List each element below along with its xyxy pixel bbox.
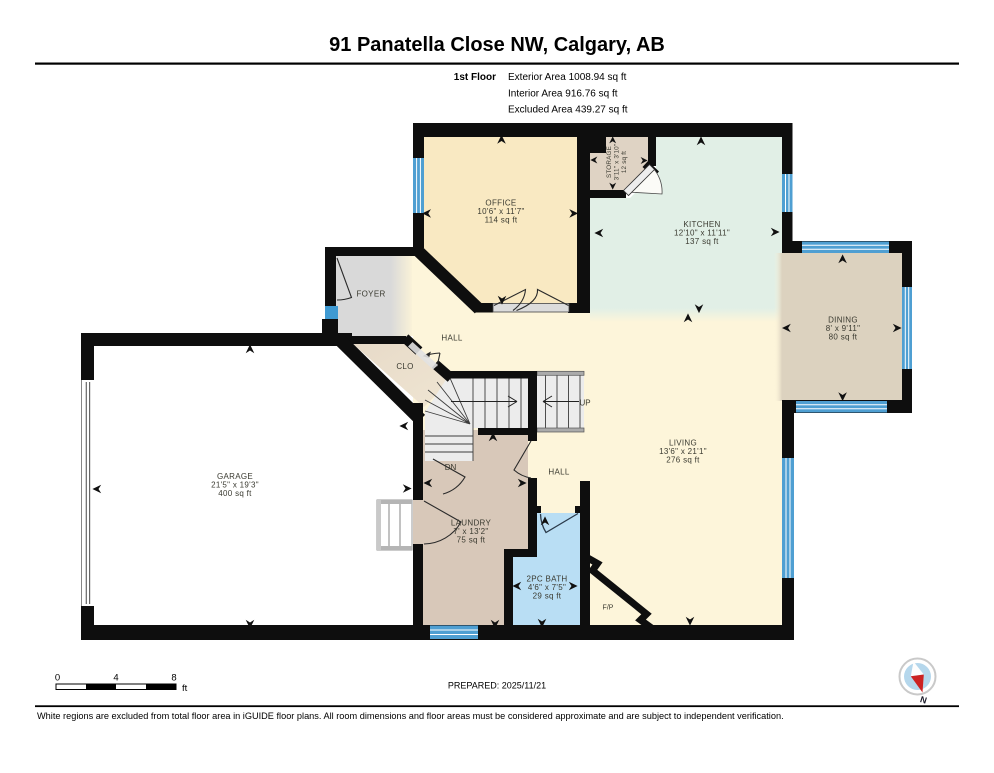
svg-text:4: 4 [113, 673, 118, 684]
svg-text:80 sq ft: 80 sq ft [829, 333, 858, 342]
svg-text:137 sq ft: 137 sq ft [685, 237, 719, 246]
svg-text:91 Panatella Close NW, Calgary: 91 Panatella Close NW, Calgary, AB [329, 34, 665, 56]
svg-text:3'11" x 3'10": 3'11" x 3'10" [614, 144, 621, 181]
svg-text:0: 0 [55, 673, 60, 684]
svg-text:STORAGE: STORAGE [606, 146, 613, 178]
svg-text:Interior Area 916.76 sq ft: Interior Area 916.76 sq ft [508, 88, 618, 99]
svg-text:1st Floor: 1st Floor [454, 72, 496, 83]
svg-text:114 sq ft: 114 sq ft [485, 216, 518, 225]
svg-text:400 sq ft: 400 sq ft [218, 489, 252, 498]
svg-text:F/P: F/P [603, 605, 614, 612]
svg-text:Excluded Area 439.27 sq ft: Excluded Area 439.27 sq ft [508, 105, 628, 116]
svg-text:UP: UP [579, 399, 590, 408]
svg-text:ft: ft [182, 683, 188, 694]
svg-text:N: N [919, 694, 928, 705]
svg-text:8: 8 [171, 673, 176, 684]
svg-text:75 sq ft: 75 sq ft [457, 536, 486, 545]
svg-text:FOYER: FOYER [356, 290, 385, 299]
svg-text:DN: DN [445, 463, 457, 472]
svg-text:PREPARED: 2025/11/21: PREPARED: 2025/11/21 [448, 681, 546, 691]
svg-text:Exterior Area 1008.94 sq ft: Exterior Area 1008.94 sq ft [508, 72, 627, 83]
svg-text:HALL: HALL [441, 334, 462, 343]
svg-text:276 sq ft: 276 sq ft [666, 456, 700, 465]
svg-text:White regions are excluded fro: White regions are excluded from total fl… [37, 711, 784, 721]
svg-text:29 sq ft: 29 sq ft [533, 592, 562, 601]
svg-text:CLO: CLO [396, 362, 413, 371]
svg-text:12 sq ft: 12 sq ft [621, 151, 628, 173]
svg-text:HALL: HALL [548, 468, 569, 477]
